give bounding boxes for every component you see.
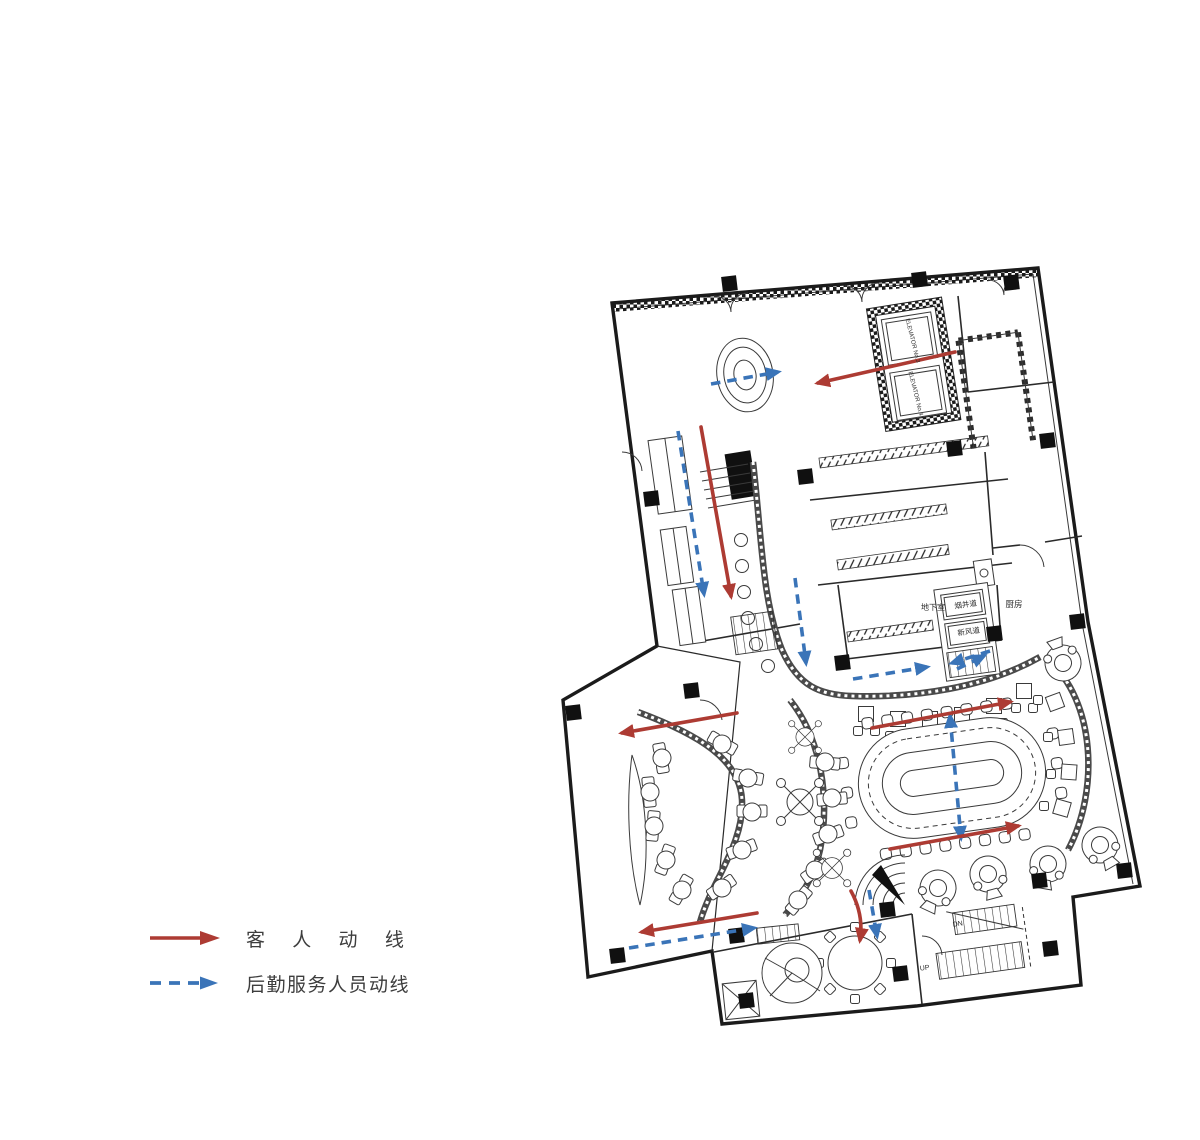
label-stair-up: UP [919,964,930,972]
service-flow-arrow-icon [148,974,220,992]
service-flow-arrow [869,890,877,936]
bar-counter-serpentine [735,462,1041,741]
top-wall-hatch [612,268,1039,312]
left-dining-area [629,700,848,922]
guest-flow-arrow [851,891,861,940]
legend-label-guest: 客 人 动 线 [246,925,415,952]
elevator-block [866,297,960,431]
guest-flow-arrow [701,427,731,596]
label-basement: 地下室 [921,602,945,612]
label-kitchen: 厨房 [1005,599,1022,609]
legend: 客 人 动 线 后勤服务人员动线 [148,926,415,1016]
label-stair-dn: DN [952,920,963,928]
service-flow-arrow [795,578,806,663]
vestibule-steps [731,611,778,654]
legend-label-service: 后勤服务人员动线 [246,970,410,997]
fan-stair [855,855,905,905]
legend-item-guest: 客 人 动 线 [148,926,415,950]
legend-item-service: 后勤服务人员动线 [148,971,415,995]
guest-flow-arrow-icon [148,929,220,947]
dn-up-stairs [930,901,1030,979]
utility-shaft [958,332,1033,448]
service-flow-arrow [853,667,927,679]
